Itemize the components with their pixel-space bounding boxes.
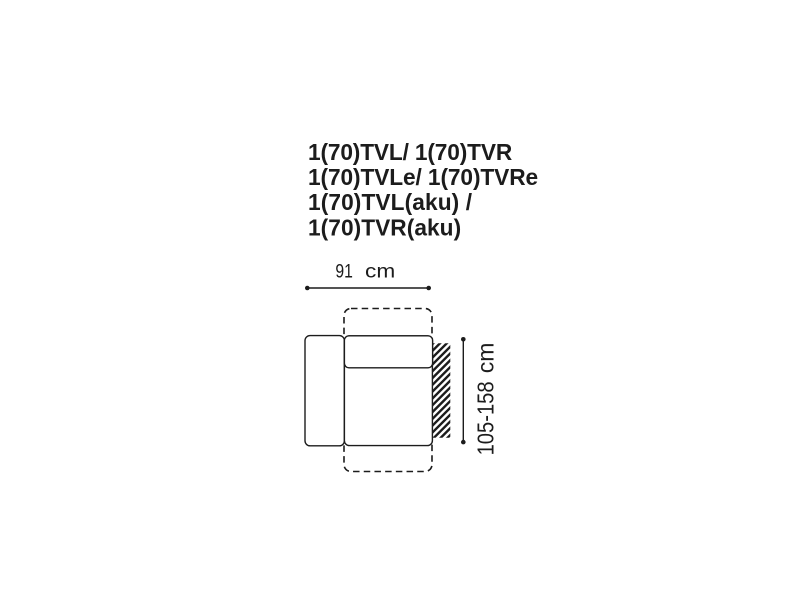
svg-text:cm: cm — [365, 261, 395, 282]
svg-text:91: 91 — [335, 261, 353, 282]
svg-text:cm: cm — [473, 343, 499, 374]
svg-text:1(70)TVL/ 1(70)TVR: 1(70)TVL/ 1(70)TVR — [308, 139, 512, 165]
svg-text:105-158: 105-158 — [473, 381, 499, 455]
svg-text:1(70)TVR(aku): 1(70)TVR(aku) — [308, 214, 461, 240]
svg-text:1(70)TVL(aku) /: 1(70)TVL(aku) / — [308, 189, 473, 215]
svg-text:1(70)TVLe/ 1(70)TVRe: 1(70)TVLe/ 1(70)TVRe — [308, 164, 538, 190]
